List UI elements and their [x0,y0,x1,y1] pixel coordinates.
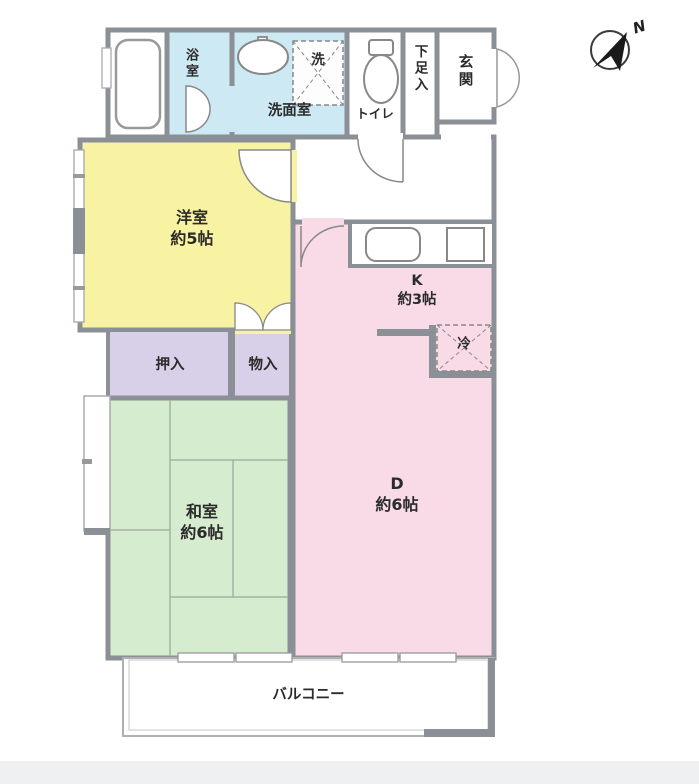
opening-washroom-door [358,133,403,141]
kitchen-stove [447,228,484,261]
room-shoe-storage [403,30,437,137]
window-tick-3 [82,459,92,464]
window-dining-1 [342,653,398,662]
closet-monoire [233,330,291,398]
closet-oshiire [108,330,230,398]
opening-bath-door [228,86,236,132]
window-dining-2 [400,653,456,662]
wall-segment-western-left [73,208,85,254]
floor-plan: 浴室 洗面室 洗 トイレ 下足入 玄関 洋室 約5帖 K 約3帖 冷 押入 物入… [0,0,699,784]
bottom-margin-strip [0,761,699,784]
window-tick-1 [73,174,85,178]
balcony-wall-bottom [424,729,494,737]
kitchen-sink [366,228,420,261]
washer-space-box [293,41,343,105]
wall-kitchen-peninsula [377,329,435,336]
balcony-area [123,658,494,736]
room-hallway [293,137,494,222]
toilet-tank [369,40,393,55]
toilet-bowl [364,55,398,103]
floorplan-drawing [0,0,699,784]
wall-fridge-bottom [429,371,494,378]
room-japanese [108,398,290,658]
room-entrance [437,30,494,122]
bathtub [116,40,160,128]
opening-kitchen-door [302,218,344,226]
entrance-door [497,49,519,107]
balcony-wall-right [488,658,495,737]
wall-fridge-left [429,325,436,378]
window-tick-2 [73,286,85,290]
room-kitchen-dining [293,222,494,658]
opening-entrance-hall [441,131,491,144]
window-japanese-1 [178,653,234,662]
washroom-sink [238,40,288,74]
window-bathtub [102,48,111,88]
wall-step-japanese [84,528,110,535]
window-japanese-2 [236,653,292,662]
